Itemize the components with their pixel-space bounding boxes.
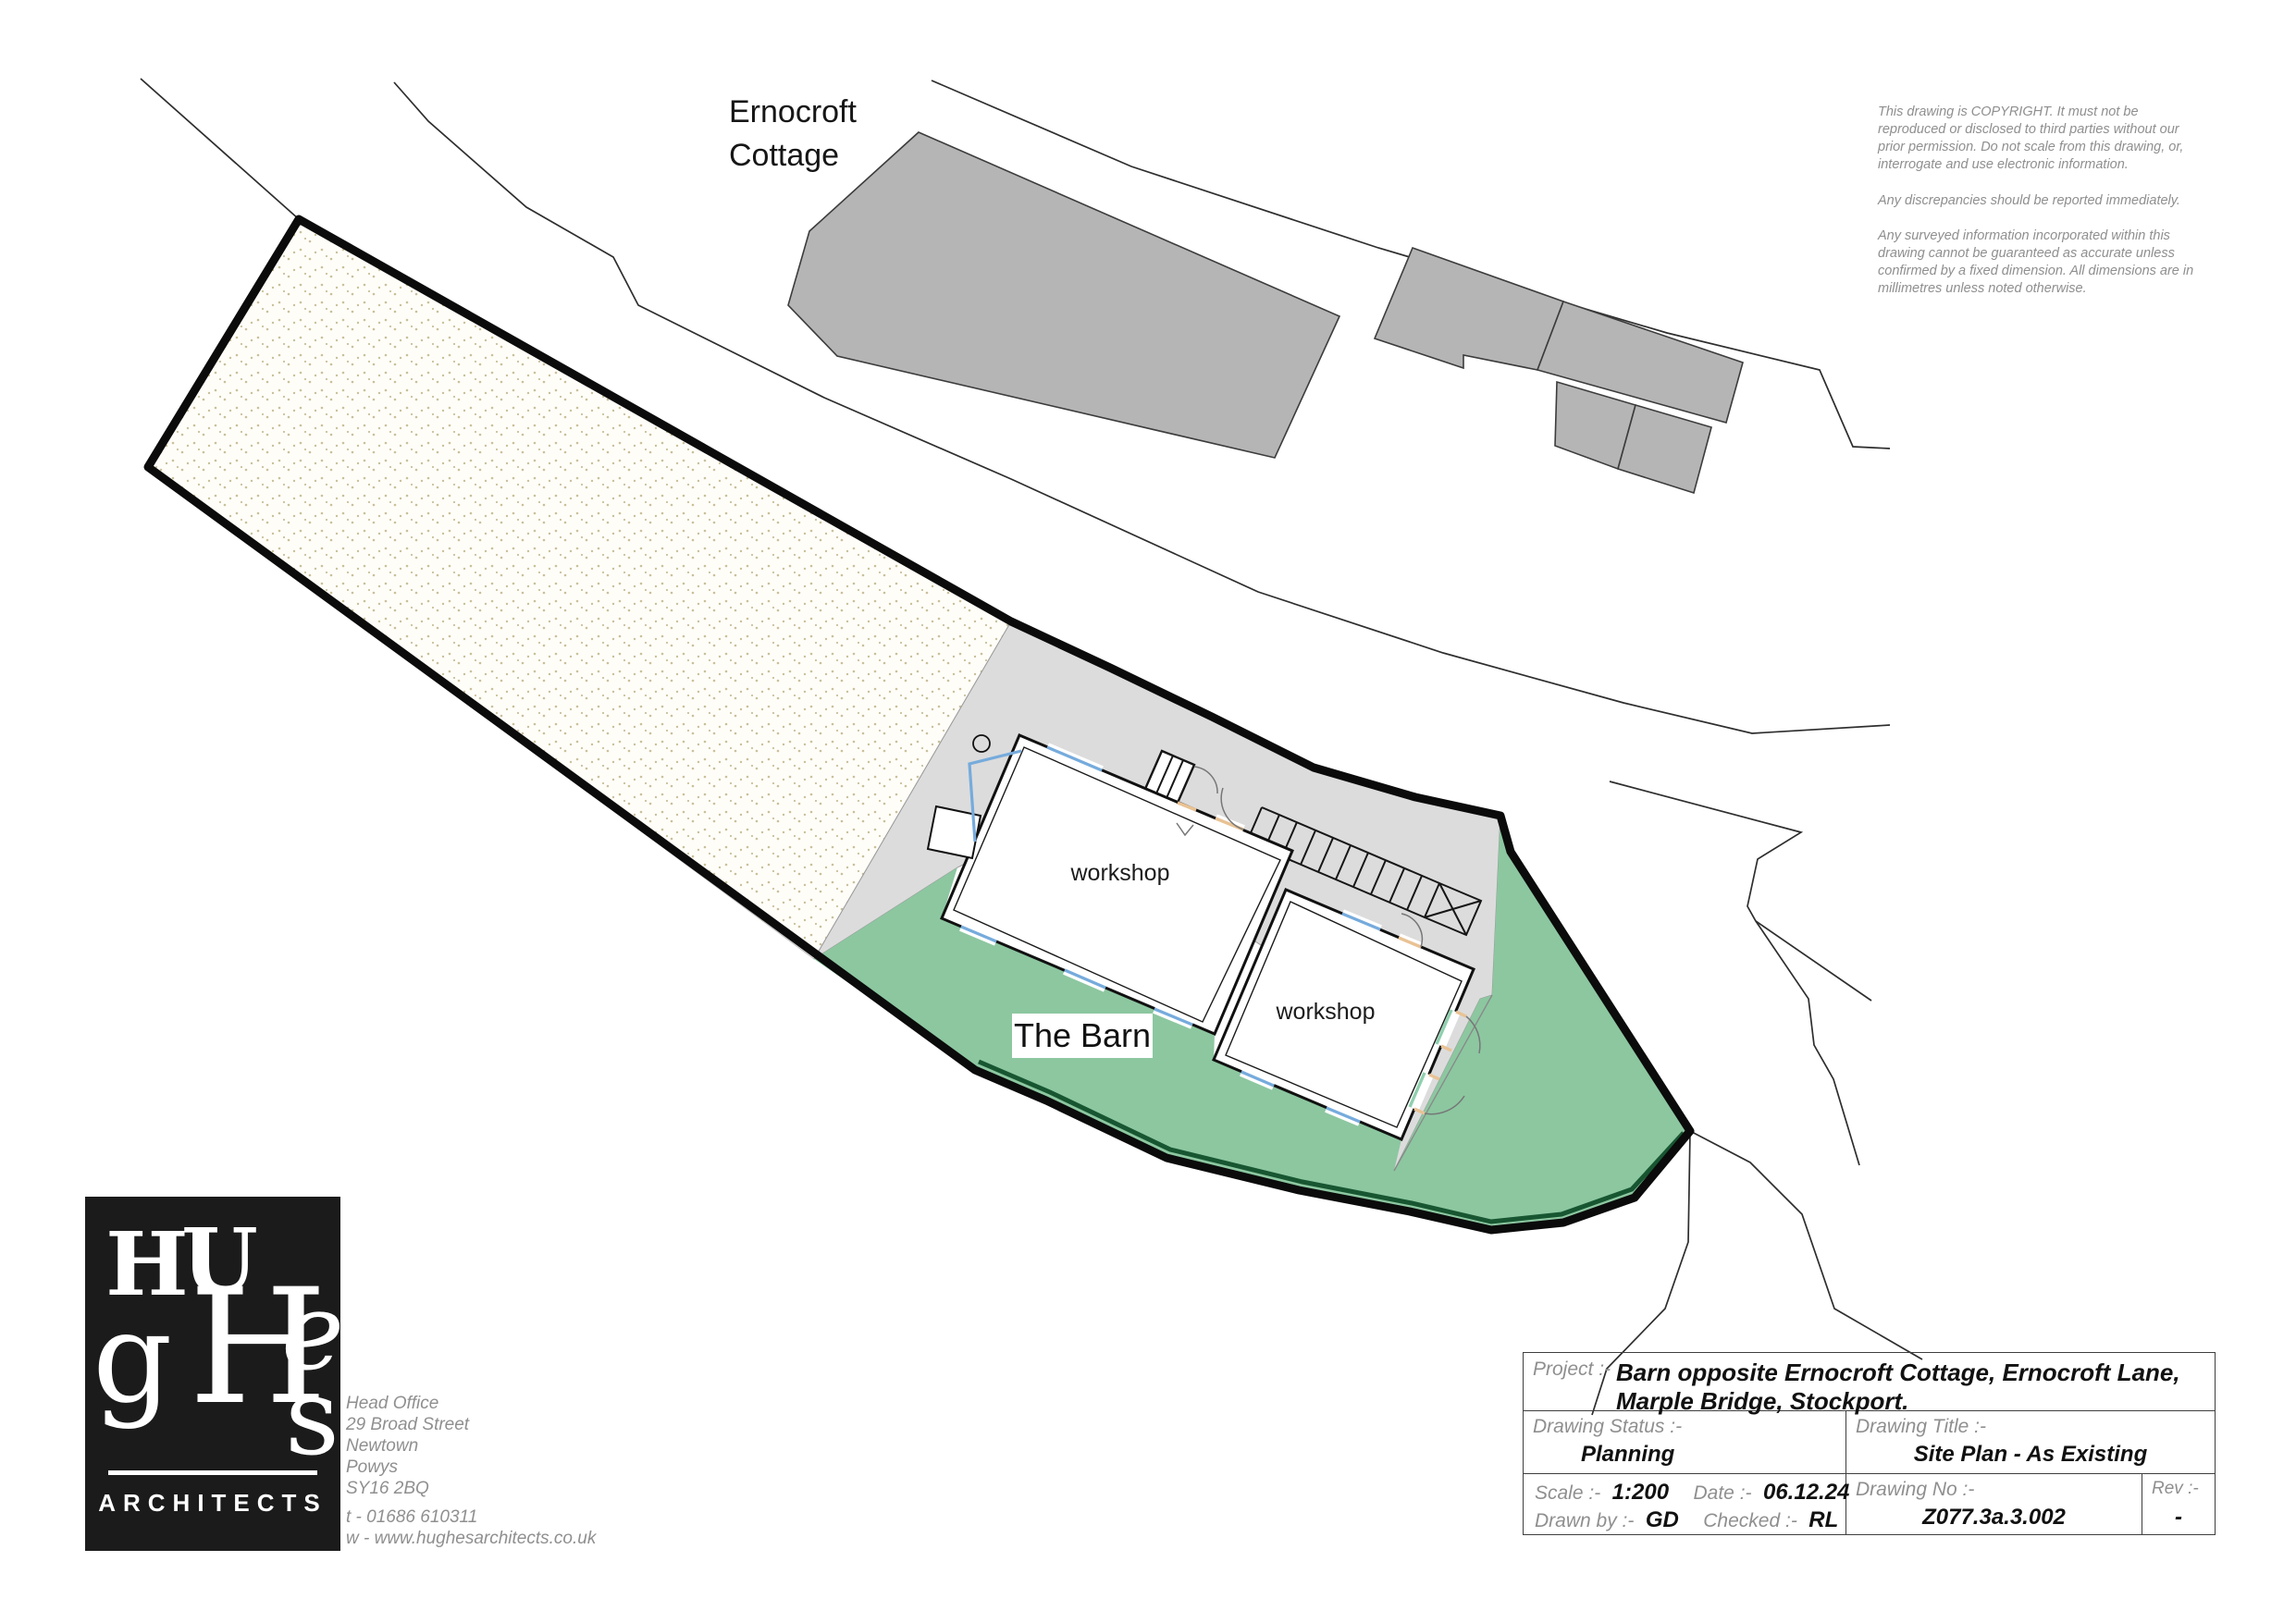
copyright-para-1: This drawing is COPYRIGHT. It must not b… <box>1878 104 2194 175</box>
drawing-no-label: Drawing No :- <box>1856 1479 1974 1501</box>
logo-letter-s: s <box>285 1356 339 1480</box>
drawing-status-value: Planning <box>1581 1442 1674 1468</box>
project-label: Project :- <box>1533 1359 1611 1381</box>
scale-date-drawn-cell: Scale :- 1:200 Date :- 06.12.24 Drawn by… <box>1524 1474 1846 1534</box>
cottage-label-line2: Cottage <box>729 134 857 178</box>
hughes-architects-logo: H U g H e s ARCHITECTS <box>85 1197 340 1551</box>
workshop-1-label: workshop <box>1042 860 1199 887</box>
drawing-status-label: Drawing Status :- <box>1533 1416 1682 1438</box>
phone-number: t - 01686 610311 <box>346 1506 596 1528</box>
outbuilding-a <box>1375 248 1563 370</box>
drawing-status-cell: Drawing Status :- Planning <box>1524 1411 1846 1473</box>
copyright-para-2: Any discrepancies should be reported imm… <box>1878 192 2194 210</box>
road-line-branch <box>1756 921 1871 1001</box>
date-label: Date :- <box>1694 1482 1752 1504</box>
office-address: Head Office 29 Broad Street Newtown Powy… <box>346 1393 596 1549</box>
project-value-line1: Barn opposite Ernocroft Cottage, Ernocro… <box>1616 1359 2180 1387</box>
address-line: Powys <box>346 1457 596 1478</box>
address-line: Head Office <box>346 1393 596 1414</box>
cottage-main-building <box>788 132 1339 458</box>
scale-value: 1:200 <box>1612 1480 1669 1505</box>
drawing-sheet: Ernocroft Cottage workshop workshop The … <box>0 0 2296 1623</box>
road-line-south-b <box>1690 1131 1922 1359</box>
date-value: 06.12.24 <box>1763 1480 1849 1505</box>
drawn-by-value: GD <box>1646 1507 1679 1532</box>
drawing-title-value: Site Plan - As Existing <box>1846 1442 2215 1468</box>
road-line-nw <box>141 79 299 219</box>
drawing-no-value: Z077.3a.3.002 <box>1846 1505 2142 1531</box>
cottage-label-line1: Ernocroft <box>729 91 857 134</box>
checked-value: RL <box>1808 1507 1838 1532</box>
drawn-by-label: Drawn by :- <box>1535 1510 1634 1531</box>
drawing-no-cell: Drawing No :- Z077.3a.3.002 <box>1846 1474 2142 1534</box>
drawing-title-cell: Drawing Title :- Site Plan - As Existing <box>1846 1411 2215 1473</box>
address-line: SY16 2BQ <box>346 1478 596 1499</box>
drawing-title-label: Drawing Title :- <box>1856 1416 1986 1438</box>
scale-label: Scale :- <box>1535 1482 1600 1504</box>
rev-cell: Rev :- - <box>2142 1474 2215 1534</box>
title-block: Project :- Barn opposite Ernocroft Cotta… <box>1523 1352 2216 1535</box>
title-block-project-row: Project :- Barn opposite Ernocroft Cotta… <box>1524 1353 2215 1411</box>
address-line: 29 Broad Street <box>346 1414 596 1435</box>
outbuilding-d <box>1618 405 1711 493</box>
website-url: w - www.hughesarchitects.co.uk <box>346 1528 596 1549</box>
logo-letter-g: g <box>93 1285 172 1431</box>
copyright-notes: This drawing is COPYRIGHT. It must not b… <box>1878 104 2194 315</box>
logo-architects-text: ARCHITECTS <box>85 1489 340 1518</box>
checked-label: Checked :- <box>1703 1510 1797 1531</box>
address-line: Newtown <box>346 1435 596 1457</box>
rev-value: - <box>2142 1505 2215 1531</box>
logo-divider <box>108 1470 317 1475</box>
barn-label: The Barn <box>1012 1014 1153 1058</box>
project-value: Barn opposite Ernocroft Cottage, Ernocro… <box>1616 1359 2180 1416</box>
copyright-para-3: Any surveyed information incorporated wi… <box>1878 227 2194 299</box>
cottage-label: Ernocroft Cottage <box>729 91 857 178</box>
workshop-2-label: workshop <box>1247 999 1404 1026</box>
rev-label: Rev :- <box>2152 1479 2199 1499</box>
